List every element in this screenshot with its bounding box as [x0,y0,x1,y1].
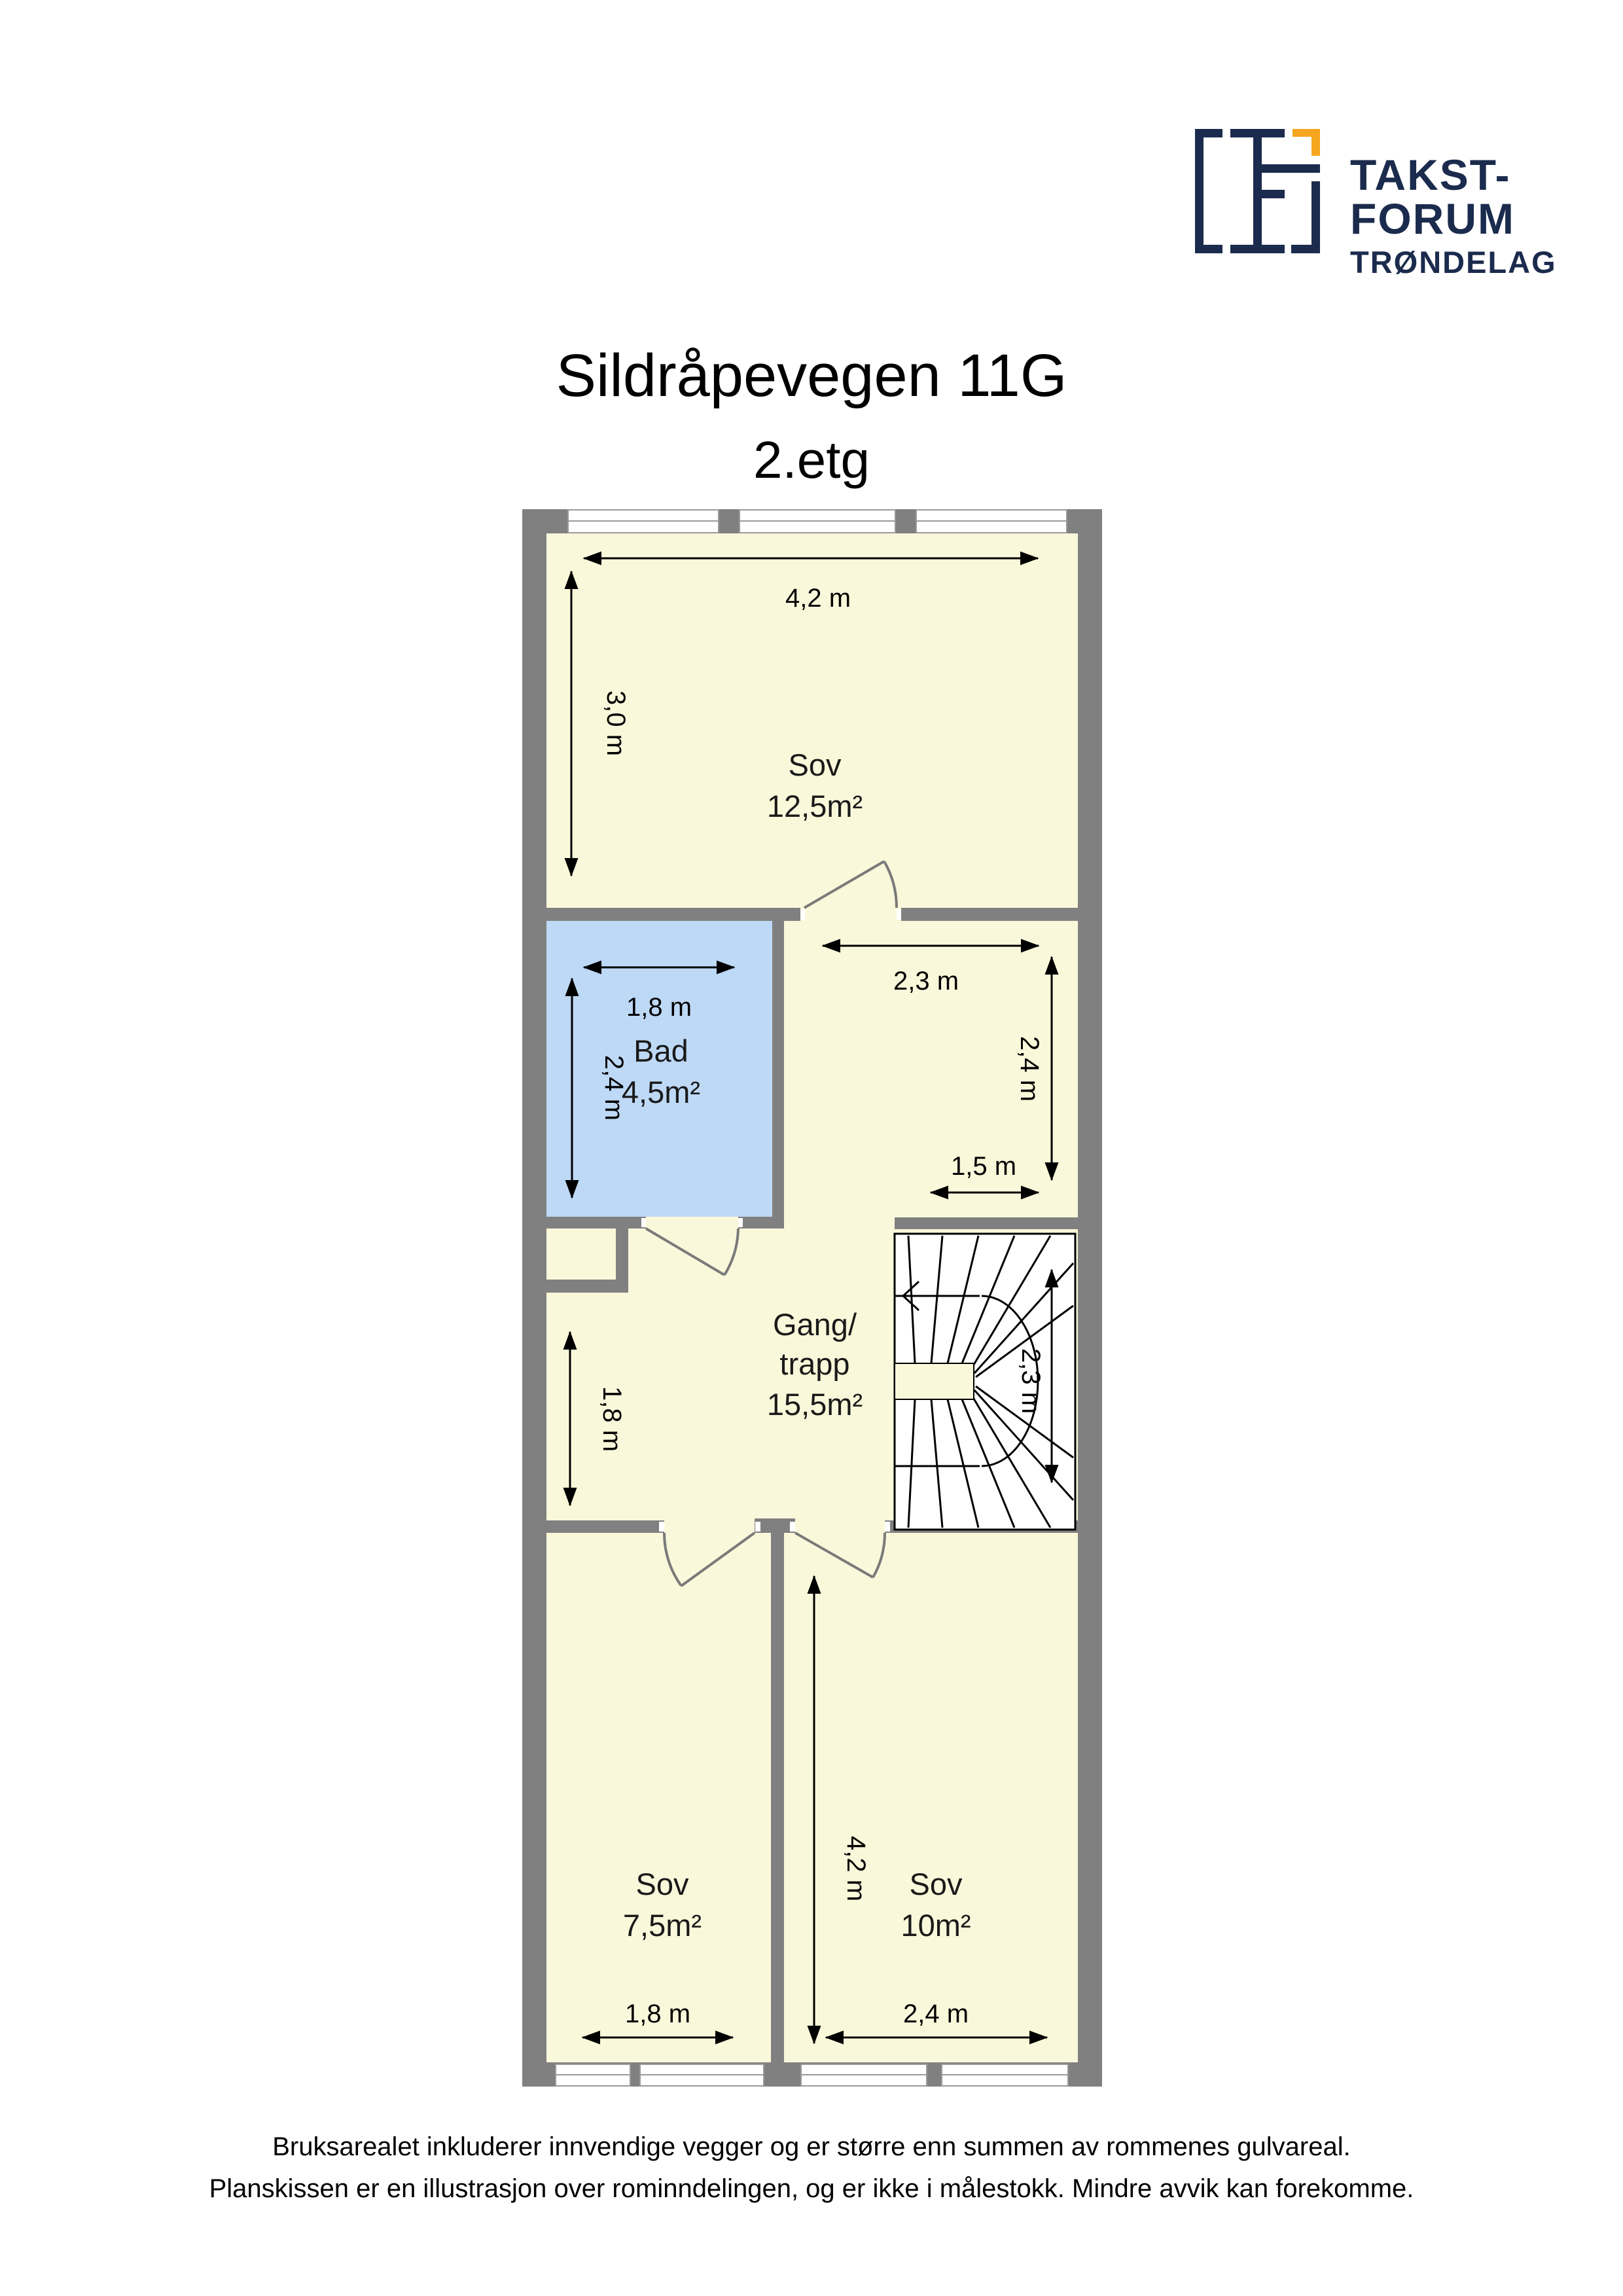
dimension-label: 1,5 m [951,1152,1016,1181]
room-name: Bad [633,1033,688,1068]
dimension-label: 2,3 m [1016,1348,1045,1414]
dimension-label: 4,2 m [785,584,851,613]
room-name: Sov [910,1867,963,1901]
room-name: Sov [636,1867,689,1901]
floor-plan: 4,2 m 3,0 m 1,8 m 2,4 m 2,3 m 2,4 m [522,509,1102,2087]
dimension-label: 1,8 m [597,1386,626,1452]
room-area: 7,5m² [623,1908,702,1943]
logo-word-3: TRØNDELAG [1350,245,1557,279]
dimension-label: 2,4 m [903,2000,969,2028]
dimension-label: 1,8 m [625,2000,690,2028]
floor-label: 2.etg [753,431,870,489]
dimension-label: 3,0 m [601,691,630,756]
room-name: Gang/ [773,1307,857,1342]
page-title: Sildråpevegen 11G [556,342,1067,409]
logo-word-1: TAKST- [1350,151,1510,199]
footer-note-line-1: Bruksarealet inkluderer innvendige vegge… [272,2132,1350,2161]
room-area: 4,5m² [622,1075,700,1109]
room-label-gang: Gang/ trapp 15,5m² [767,1307,863,1422]
takstforum-logo-mark-icon [1195,129,1320,253]
logo-word-2: FORUM [1350,194,1515,243]
staircase [895,1234,1075,1530]
room-name: trapp [779,1346,849,1381]
takstforum-logo: TAKST- FORUM TRØNDELAG [1195,129,1557,279]
room-area: 10m² [901,1908,971,1943]
bathroom-floor [546,921,772,1217]
stair-landing [895,1363,974,1399]
dimension-label: 2,4 m [1015,1036,1044,1102]
footer-note-line-2: Planskissen er en illustrasjon over romi… [209,2174,1414,2203]
floor-plan-canvas: TAKST- FORUM TRØNDELAG Sildråpevegen 11G… [0,0,1623,2296]
room-area: 12,5m² [767,789,863,823]
dimension-label: 2,3 m [893,967,959,996]
room-name: Sov [789,747,842,782]
dimension-label: 1,8 m [626,993,692,1022]
dimension-label: 4,2 m [842,1836,870,1901]
room-area: 15,5m² [767,1387,863,1422]
